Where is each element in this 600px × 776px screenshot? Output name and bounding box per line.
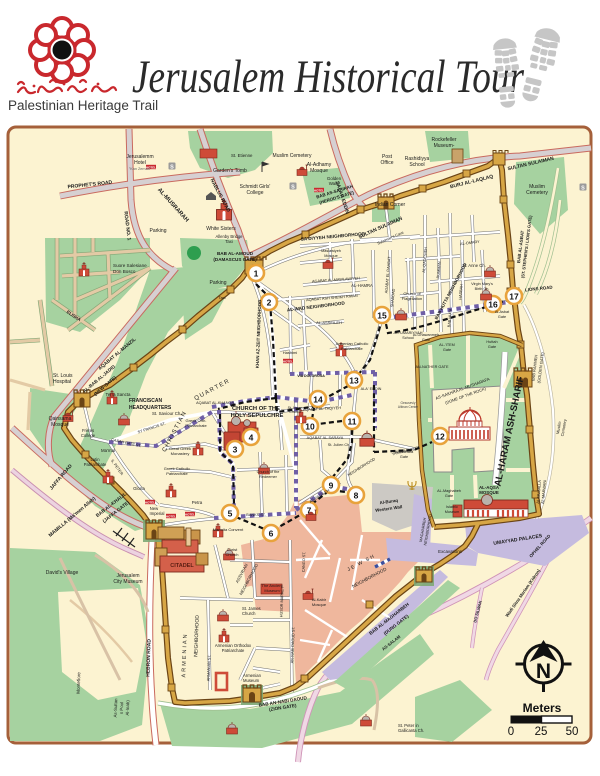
svg-text:11: 11: [348, 417, 357, 427]
svg-text:"Kan Zeman": "Kan Zeman": [129, 167, 152, 171]
svg-text:Excavations: Excavations: [438, 549, 462, 554]
svg-text:Al-Ghawanmeh: Al-Ghawanmeh: [413, 333, 439, 337]
svg-text:Patriarchate: Patriarchate: [341, 346, 363, 351]
svg-text:Imperial: Imperial: [150, 511, 165, 516]
svg-text:Cemetery: Cemetery: [526, 190, 548, 196]
svg-text:Birth Ch.: Birth Ch.: [475, 287, 490, 291]
svg-text:St. Saviour Ch.: St. Saviour Ch.: [152, 411, 182, 416]
svg-text:Monastery: Monastery: [171, 451, 190, 456]
svg-text:AL-'ITEM: AL-'ITEM: [439, 343, 455, 347]
svg-text:(DAMASCUS GATE): (DAMASCUS GATE): [213, 257, 257, 262]
svg-text:1: 1: [254, 269, 259, 279]
svg-text:Mosque: Mosque: [310, 168, 328, 174]
svg-text:Patriarchate: Patriarchate: [222, 648, 245, 653]
svg-text:AN-NATHER GATE: AN-NATHER GATE: [416, 365, 449, 369]
svg-text:Maslawiyeh: Maslawiyeh: [321, 249, 341, 253]
svg-text:College: College: [247, 190, 264, 196]
svg-text:AQABAT AL-KHANQA: AQABAT AL-KHANQA: [196, 401, 234, 405]
svg-text:Mosque: Mosque: [324, 254, 338, 258]
svg-text:CHURCH OF THE: CHURCH OF THE: [232, 406, 280, 412]
svg-text:8: 8: [354, 491, 359, 501]
svg-text:Parking: Parking: [210, 280, 227, 286]
svg-text:Al-Inab): Al-Inab): [125, 700, 131, 716]
svg-text:Hashimi: Hashimi: [283, 350, 298, 355]
svg-text:Gate: Gate: [488, 345, 496, 349]
svg-text:s Pool: s Pool: [119, 702, 124, 714]
svg-text:As-Sultan: As-Sultan: [113, 698, 119, 718]
svg-text:Patriarchate: Patriarchate: [166, 471, 188, 476]
svg-text:Museum: Museum: [445, 510, 460, 514]
svg-text:Hospital: Hospital: [53, 379, 71, 385]
svg-text:Gate: Gate: [445, 494, 453, 498]
svg-text:Indian Corner: Indian Corner: [375, 202, 406, 208]
svg-text:5: 5: [228, 509, 233, 519]
svg-text:Museum: Museum: [264, 588, 280, 593]
svg-text:Islamic: Islamic: [446, 505, 458, 509]
svg-text:14: 14: [313, 395, 323, 405]
svg-text:Suore Salesiane: Suore Salesiane: [113, 263, 147, 268]
svg-text:12: 12: [435, 432, 445, 442]
svg-text:Museum-: Museum-: [434, 143, 455, 149]
svg-text:50: 50: [566, 726, 579, 738]
svg-text:Don Bosco: Don Bosco: [113, 269, 136, 274]
svg-text:Gate: Gate: [422, 338, 430, 342]
svg-text:White Sisters: White Sisters: [206, 226, 236, 232]
svg-text:2: 2: [267, 298, 272, 308]
svg-text:CANGO ST.: CANGO ST.: [302, 552, 307, 573]
svg-text:St. Etienne: St. Etienne: [231, 153, 253, 158]
svg-text:AL-Maghabeh: AL-Maghabeh: [437, 489, 461, 493]
svg-text:Terra Sancta: Terra Sancta: [106, 392, 131, 397]
svg-text:AL-ASSEILEH: AL-ASSEILEH: [316, 320, 342, 325]
svg-text:Jerusalem Historical Tour: Jerusalem Historical Tour: [132, 51, 525, 103]
svg-text:AQABAT AL-SARAYA: AQABAT AL-SARAYA: [307, 436, 344, 440]
svg-text:BAB AL-AMOUD: BAB AL-AMOUD: [217, 251, 254, 256]
svg-text:13: 13: [349, 376, 359, 386]
svg-text:25: 25: [535, 726, 548, 738]
svg-text:Church: Church: [289, 410, 301, 414]
svg-text:17: 17: [509, 292, 519, 302]
svg-text:16: 16: [488, 300, 498, 310]
svg-text:Virgin Mary's: Virgin Mary's: [471, 282, 493, 286]
svg-text:Ma'mal: Ma'mal: [101, 448, 115, 453]
svg-text:Montefiore: Montefiore: [76, 672, 82, 694]
svg-text:Patriarchate: Patriarchate: [84, 462, 107, 467]
svg-text:HOLY SEPULCHRE: HOLY SEPULCHRE: [231, 413, 284, 419]
svg-text:Mosque: Mosque: [51, 422, 69, 428]
svg-text:6: 6: [269, 529, 274, 539]
svg-text:10: 10: [305, 422, 315, 432]
svg-text:Gloria: Gloria: [133, 486, 145, 491]
svg-text:Gate: Gate: [498, 315, 506, 319]
svg-text:Parking: Parking: [150, 228, 167, 234]
svg-text:FRANCISCAN: FRANCISCAN: [129, 398, 162, 404]
svg-text:Taxi: Taxi: [218, 295, 225, 300]
svg-text:St. Anne Ch.: St. Anne Ch.: [462, 263, 486, 268]
svg-text:Hotel: Hotel: [134, 160, 146, 166]
svg-text:Altinan Center: Altinan Center: [398, 405, 419, 409]
svg-text:Redeemer: Redeemer: [259, 475, 277, 479]
svg-text:David's Village: David's Village: [46, 570, 79, 576]
svg-text:3: 3: [233, 445, 238, 455]
svg-text:BANKS ST.: BANKS ST.: [246, 513, 265, 517]
svg-text:Huttah: Huttah: [486, 340, 497, 344]
svg-text:15: 15: [377, 311, 387, 321]
svg-text:Patriarchate: Patriarchate: [185, 423, 207, 428]
svg-text:Taxi: Taxi: [225, 239, 233, 244]
svg-text:CITADEL: CITADEL: [170, 563, 194, 569]
svg-text:Al-Asbat: Al-Asbat: [495, 310, 510, 314]
svg-text:N: N: [536, 660, 551, 683]
svg-text:Garden's Tomb: Garden's Tomb: [213, 168, 247, 174]
svg-text:4: 4: [249, 433, 254, 443]
svg-text:Marmita Convent: Marmita Convent: [213, 527, 244, 532]
svg-text:AL-HAMRA: AL-HAMRA: [351, 283, 373, 288]
svg-text:9: 9: [329, 481, 334, 491]
svg-text:Meters: Meters: [523, 701, 562, 715]
svg-text:0: 0: [508, 726, 514, 738]
svg-text:Muslim Cemetery: Muslim Cemetery: [273, 153, 312, 159]
svg-text:School: School: [409, 162, 424, 168]
svg-text:VIA DOLOROSA: VIA DOLOROSA: [297, 374, 325, 378]
svg-text:St. Julien Ch.: St. Julien Ch.: [328, 443, 351, 447]
svg-text:Gate: Gate: [443, 348, 451, 352]
svg-text:Office: Office: [381, 160, 394, 166]
svg-text:Flagellation: Flagellation: [402, 296, 422, 301]
svg-text:Church of the: Church of the: [257, 470, 280, 474]
svg-text:Church: Church: [226, 552, 239, 557]
svg-text:MOSQUE: MOSQUE: [479, 490, 499, 495]
svg-text:Petra: Petra: [192, 500, 203, 505]
svg-text:Gallicanta Ch.: Gallicanta Ch.: [398, 728, 424, 733]
svg-text:College: College: [81, 433, 96, 438]
svg-text:City Museum: City Museum: [113, 579, 142, 585]
svg-text:Mosque: Mosque: [312, 602, 327, 607]
svg-text:Gate: Gate: [400, 455, 408, 459]
svg-text:Church: Church: [242, 611, 256, 616]
svg-text:Al-Mathara: Al-Mathara: [395, 450, 414, 454]
svg-text:ALA' EDDIN: ALA' EDDIN: [361, 387, 382, 391]
svg-text:Museum: Museum: [243, 678, 260, 683]
